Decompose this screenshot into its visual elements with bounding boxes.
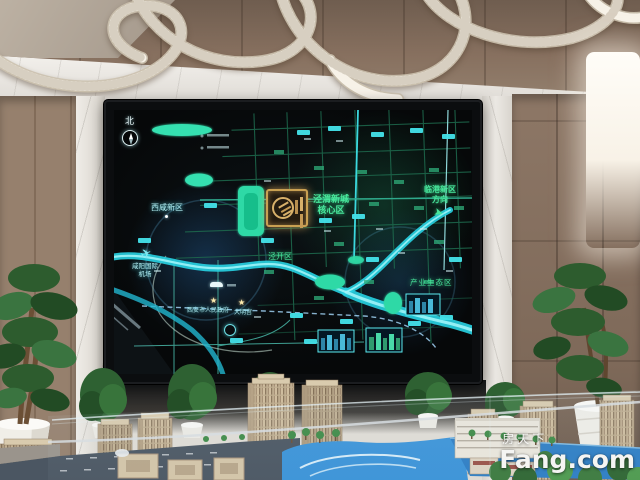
region-map-display: 北 西咸新区 泾渭新城核心区 临港新区方向 ➤ 产业生态区 泾开区 ✈ 咸阳国际… [114, 110, 472, 374]
lingang-line1: 临港新区 [417, 185, 463, 195]
map-label-jingwei-core: 泾渭新城核心区 [306, 195, 356, 217]
ribbon-chandelier [0, 0, 640, 105]
star-icon: ★ [238, 298, 245, 308]
compass-icon [122, 130, 138, 146]
project-logo-plaque [266, 189, 308, 227]
logo-text-marks [300, 197, 303, 211]
map-label-daming-palace: 大明宫 [228, 309, 258, 316]
landmark-ring-icon [224, 324, 236, 336]
lingang-line2: 方向 [417, 195, 463, 205]
map-label-city-government: 西安市人民政府 [182, 307, 234, 314]
map-artwork [114, 110, 472, 374]
watermark-latin: Fang.com [499, 445, 635, 474]
lit-wall-column [586, 52, 640, 248]
jingwei-line2: 核心区 [306, 206, 356, 217]
map-label-industry-eco-zone: 产业生态区 [410, 278, 453, 287]
map-label-xixian-new-area: 西咸新区 [144, 203, 190, 213]
car-icon [210, 282, 223, 287]
city-dot-icon [165, 215, 168, 218]
jingwei-line1: 泾渭新城 [306, 195, 356, 206]
fang-watermark: 房天下 Fang.com [499, 430, 635, 474]
map-label-jingkai-zone: 泾开区 [268, 252, 292, 262]
star-icon: ★ [210, 296, 217, 306]
compass-north-label: 北 [125, 117, 134, 128]
logo-seal-icon [272, 197, 294, 219]
sales-center-photo: 北 西咸新区 泾渭新城核心区 临港新区方向 ➤ 产业生态区 泾开区 ✈ 咸阳国际… [0, 0, 640, 480]
map-label-lingang-direction: 临港新区方向 [417, 185, 463, 204]
